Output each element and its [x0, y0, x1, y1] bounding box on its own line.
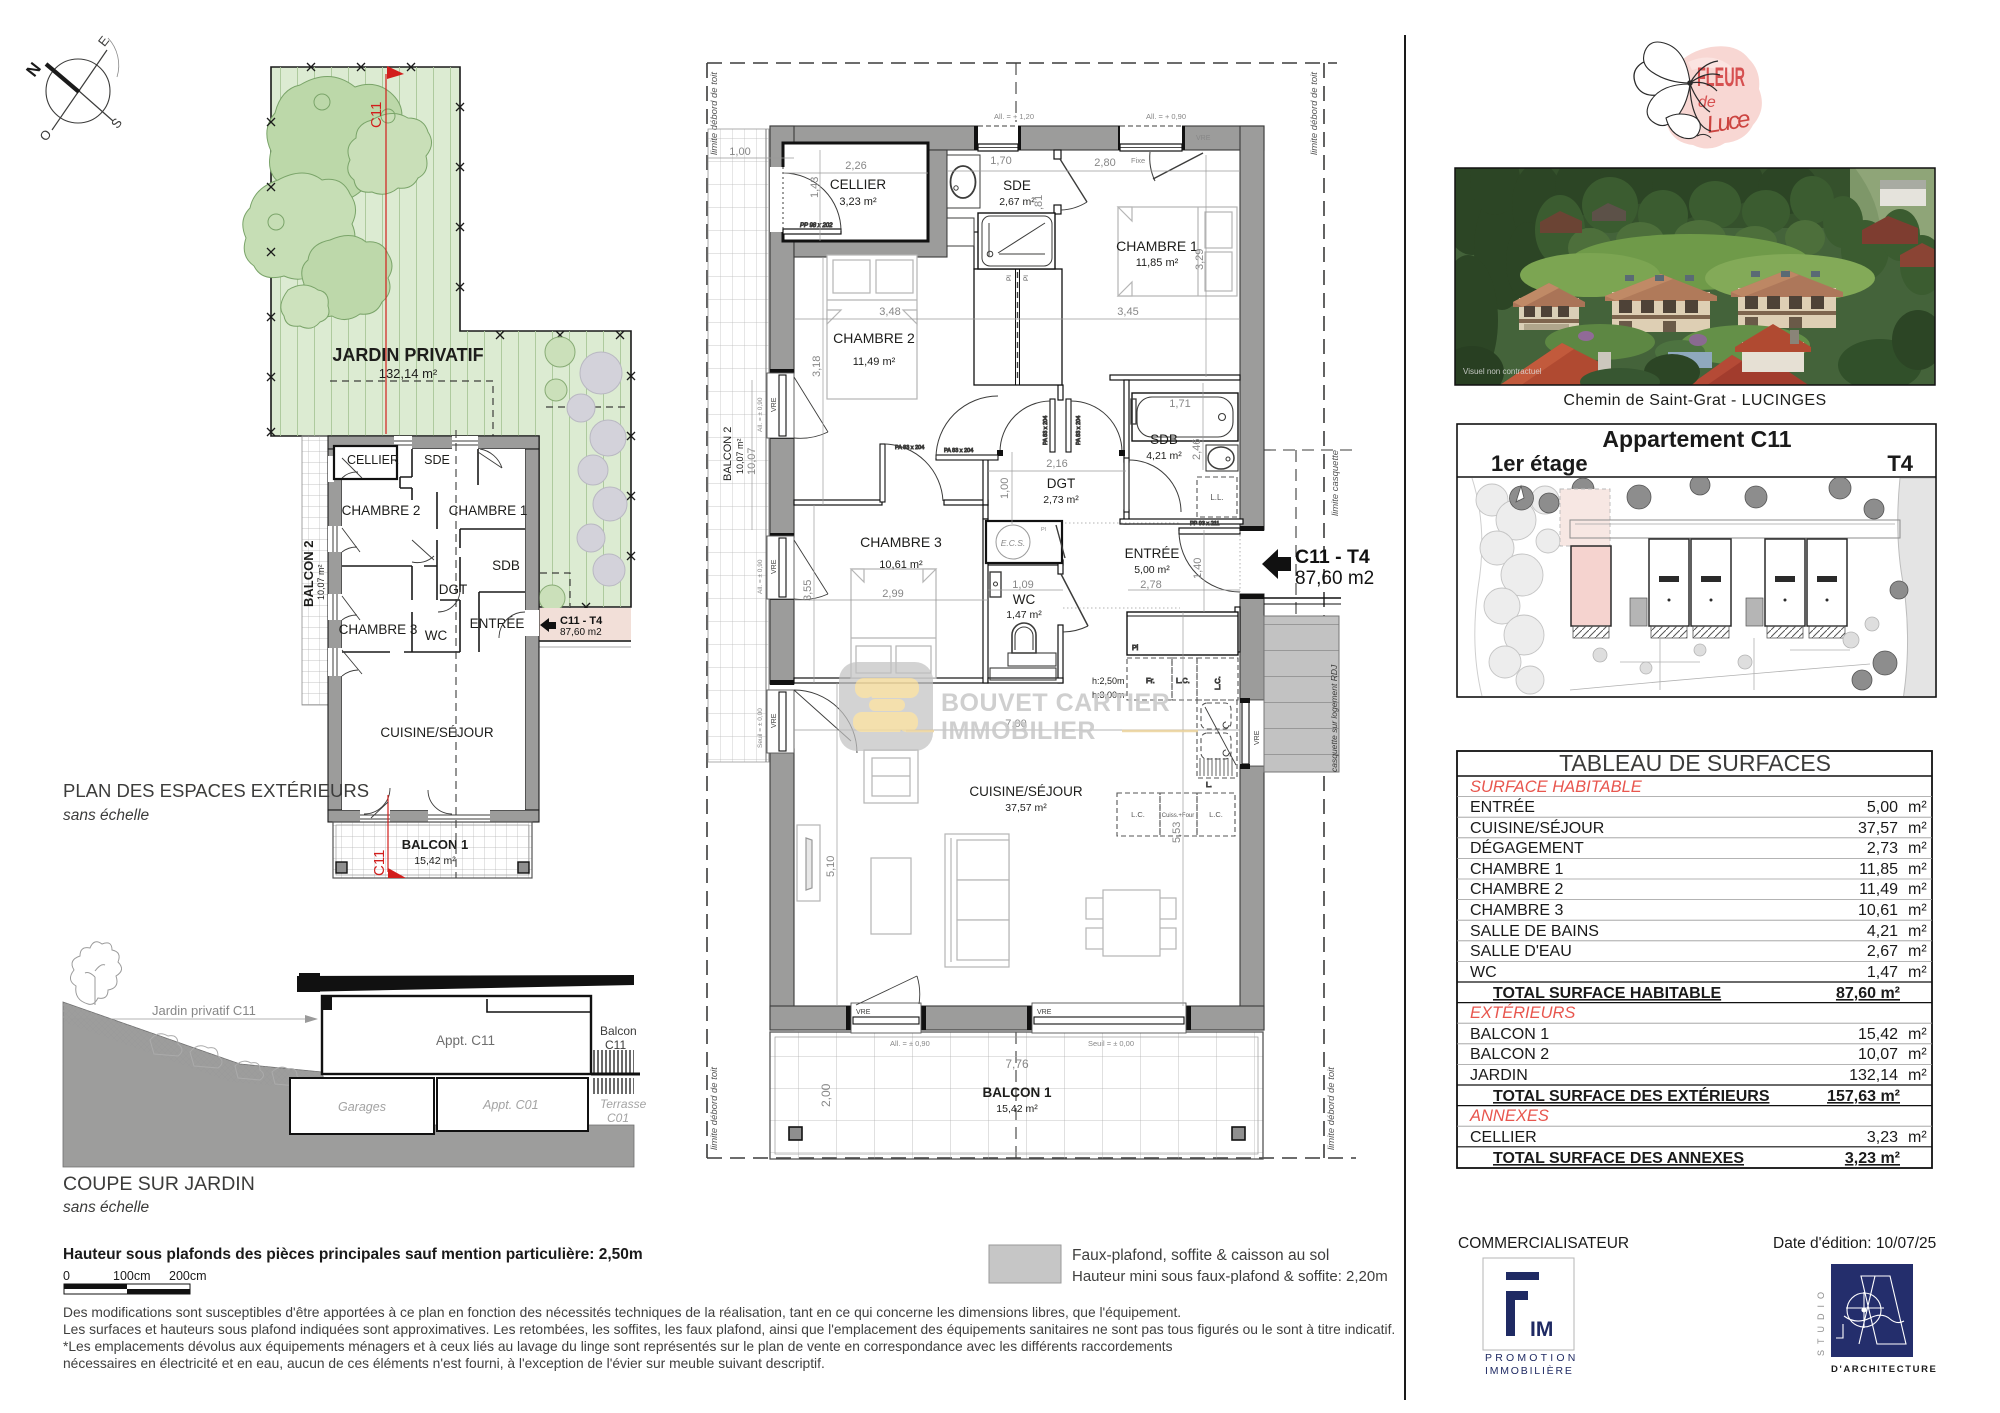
svg-text:Fixe: Fixe: [1131, 156, 1145, 165]
svg-text:CELLIER: CELLIER: [830, 177, 887, 192]
svg-text:CHAMBRE 3: CHAMBRE 3: [339, 622, 418, 637]
svg-text:3,55: 3,55: [802, 580, 814, 601]
svg-text:10,61 m²: 10,61 m²: [879, 559, 923, 571]
svg-text:87,60 m2: 87,60 m2: [1295, 568, 1374, 589]
svg-text:T4: T4: [1887, 451, 1913, 476]
svg-text:2,99: 2,99: [882, 588, 903, 600]
svg-text:1,43: 1,43: [809, 177, 821, 198]
svg-text:87,60 m²: 87,60 m²: [1836, 985, 1900, 1002]
svg-text:CHAMBRE 1: CHAMBRE 1: [1470, 861, 1563, 878]
svg-text:IM: IM: [1530, 1318, 1553, 1341]
svg-text:Cuiss.+Four: Cuiss.+Four: [1162, 813, 1195, 819]
svg-text:1,40: 1,40: [1192, 558, 1204, 579]
svg-text:PP 93 x 211: PP 93 x 211: [1190, 521, 1219, 527]
svg-text:CHAMBRE 1: CHAMBRE 1: [1116, 238, 1198, 254]
svg-text:ANNEXES: ANNEXES: [1469, 1107, 1549, 1125]
svg-text:11,85: 11,85: [1859, 861, 1898, 878]
svg-text:3,48: 3,48: [879, 306, 900, 318]
svg-text:Pl: Pl: [1132, 645, 1139, 652]
svg-text:5,00 m²: 5,00 m²: [1134, 564, 1170, 576]
svg-text:ENTRÉE: ENTRÉE: [1470, 797, 1535, 816]
svg-text:COUPE SUR JARDIN: COUPE SUR JARDIN: [63, 1173, 255, 1195]
svg-text:TOTAL SURFACE DES EXTÉRIEURS: TOTAL SURFACE DES EXTÉRIEURS: [1493, 1086, 1770, 1105]
svg-text:limite débord de toit: limite débord de toit: [1309, 72, 1320, 155]
svg-text:Visuel non contractuel: Visuel non contractuel: [1463, 367, 1542, 376]
svg-text:m²: m²: [1908, 840, 1927, 857]
svg-text:2,00: 2,00: [819, 1083, 833, 1107]
svg-text:All. = + 0,90: All. = + 0,90: [1146, 112, 1186, 121]
svg-text:2,67: 2,67: [1867, 943, 1898, 960]
svg-text:C11 - T4: C11 - T4: [1295, 546, 1370, 568]
svg-text:L.C.: L.C.: [1213, 676, 1222, 690]
svg-text:BOUVET CARTIER: BOUVET CARTIER: [941, 689, 1170, 717]
svg-text:BALCON 2: BALCON 2: [722, 427, 734, 481]
svg-text:2,67 m²: 2,67 m²: [999, 196, 1035, 208]
svg-text:Pl: Pl: [1006, 275, 1013, 281]
svg-text:SDB: SDB: [1150, 432, 1178, 447]
svg-text:Hauteur mini sous faux-plafond: Hauteur mini sous faux-plafond & soffite…: [1072, 1268, 1388, 1285]
svg-text:132,14: 132,14: [1849, 1067, 1898, 1084]
svg-text:CELLIER: CELLIER: [347, 453, 399, 467]
svg-text:87,60 m2: 87,60 m2: [560, 627, 602, 638]
svg-text:m²: m²: [1908, 964, 1927, 981]
svg-text:N: N: [22, 59, 45, 80]
svg-text:D'ARCHITECTURE: D'ARCHITECTURE: [1831, 1364, 1937, 1375]
svg-text:C11: C11: [605, 1038, 626, 1052]
svg-text:2,26: 2,26: [845, 160, 866, 172]
svg-text:15,42: 15,42: [1858, 1026, 1898, 1043]
svg-text:L.C.: L.C.: [1131, 810, 1145, 819]
svg-text:E.C.S.: E.C.S.: [1001, 538, 1026, 548]
svg-text:BALCON 2: BALCON 2: [301, 541, 316, 607]
svg-text:JARDIN: JARDIN: [1470, 1067, 1528, 1084]
svg-text:Pl: Pl: [1041, 527, 1046, 533]
svg-text:2,16: 2,16: [1046, 458, 1067, 470]
svg-text:Fr.: Fr.: [1146, 676, 1155, 685]
svg-text:1,09: 1,09: [1012, 579, 1033, 591]
svg-text:7,76: 7,76: [1005, 1057, 1029, 1071]
svg-text:S: S: [108, 115, 125, 131]
svg-text:JARDIN PRIVATIF: JARDIN PRIVATIF: [332, 345, 483, 365]
svg-text:Pl: Pl: [1023, 275, 1030, 281]
svg-text:10,61: 10,61: [1858, 902, 1898, 919]
svg-text:PROMOTION: PROMOTION: [1485, 1352, 1579, 1364]
svg-text:2,73 m²: 2,73 m²: [1043, 494, 1079, 506]
svg-text:m²: m²: [1908, 1067, 1927, 1084]
svg-text:1,47: 1,47: [1867, 964, 1898, 981]
svg-text:11,49: 11,49: [1859, 881, 1898, 898]
svg-text:C11 - T4: C11 - T4: [560, 615, 603, 627]
svg-text:SDB: SDB: [492, 558, 520, 573]
svg-text:Des modifications sont suscept: Des modifications sont susceptibles d'êt…: [63, 1305, 1181, 1320]
svg-text:PA 83 x 204: PA 83 x 204: [895, 445, 924, 451]
svg-text:*Les emplacements dévolus aux: *Les emplacements dévolus aux équipement…: [63, 1339, 1173, 1354]
svg-text:5,53: 5,53: [1171, 822, 1183, 843]
svg-text:m²: m²: [1908, 1046, 1927, 1063]
svg-text:2,46: 2,46: [1191, 439, 1203, 460]
svg-text:CHAMBRE 2: CHAMBRE 2: [1470, 881, 1563, 898]
svg-text:sans échelle: sans échelle: [63, 807, 150, 824]
svg-text:TOTAL SURFACE DES ANNEXES: TOTAL SURFACE DES ANNEXES: [1493, 1150, 1744, 1167]
svg-text:limite débord de toit: limite débord de toit: [1326, 1067, 1337, 1150]
svg-text:C11: C11: [371, 850, 388, 876]
svg-text:E: E: [95, 33, 112, 49]
svg-text:PA 83 x 204: PA 83 x 204: [1076, 416, 1082, 445]
svg-text:10,07 m²: 10,07 m²: [316, 564, 326, 600]
svg-text:PA 83 x 204: PA 83 x 204: [944, 448, 973, 454]
svg-text:O: O: [36, 127, 54, 144]
svg-text:CELLIER: CELLIER: [1470, 1129, 1537, 1146]
svg-text:WC: WC: [425, 628, 448, 643]
svg-text:15,42 m²: 15,42 m²: [996, 1103, 1038, 1115]
svg-text:SURFACE HABITABLE: SURFACE HABITABLE: [1470, 778, 1643, 796]
svg-text:Chemin de Saint-Grat - LUCINGE: Chemin de Saint-Grat - LUCINGES: [1563, 392, 1826, 409]
svg-text:DÉGAGEMENT: DÉGAGEMENT: [1470, 838, 1584, 857]
svg-text:VRE: VRE: [771, 559, 778, 574]
svg-text:All. = ± 0,90: All. = ± 0,90: [757, 559, 764, 594]
svg-text:EXTÉRIEURS: EXTÉRIEURS: [1470, 1003, 1575, 1022]
svg-text:1,47 m²: 1,47 m²: [1006, 609, 1042, 621]
svg-text:BALCON 1: BALCON 1: [982, 1085, 1051, 1100]
svg-text:2,73: 2,73: [1867, 840, 1898, 857]
svg-text:m²: m²: [1908, 881, 1927, 898]
svg-text:200cm: 200cm: [169, 1269, 207, 1283]
svg-text:10,07 m²: 10,07 m²: [735, 438, 745, 474]
svg-text:h:2,50m: h:2,50m: [1092, 676, 1125, 686]
svg-text:Jardin privatif C11: Jardin privatif C11: [152, 1003, 256, 1018]
svg-text:Appt. C11: Appt. C11: [436, 1033, 495, 1048]
svg-text:4,21 m²: 4,21 m²: [1146, 450, 1182, 462]
svg-text:VRE: VRE: [1254, 730, 1261, 745]
svg-text:3,23 m²: 3,23 m²: [1845, 1150, 1900, 1167]
svg-text:COMMERCIALISATEUR: COMMERCIALISATEUR: [1458, 1235, 1629, 1252]
svg-text:3,23: 3,23: [1867, 1129, 1898, 1146]
svg-text:sans échelle: sans échelle: [63, 1199, 150, 1216]
svg-text:Les surfaces et hauteurs sous: Les surfaces et hauteurs sous plafond in…: [63, 1322, 1395, 1337]
svg-text:DGT: DGT: [1047, 476, 1076, 491]
svg-text:3,23 m²: 3,23 m²: [839, 196, 877, 208]
svg-text:CHAMBRE 3: CHAMBRE 3: [860, 534, 942, 550]
svg-text:5,00: 5,00: [1867, 799, 1898, 816]
svg-text:5,10: 5,10: [825, 856, 837, 877]
svg-text:All. = ± 0,90: All. = ± 0,90: [757, 397, 764, 432]
svg-text:,81: ,81: [1033, 195, 1045, 210]
svg-text:CUISINE/SÉJOUR: CUISINE/SÉJOUR: [1470, 818, 1604, 837]
svg-text:157,63 m²: 157,63 m²: [1827, 1088, 1900, 1105]
svg-text:1,00: 1,00: [729, 146, 750, 158]
svg-text:limite casquette: limite casquette: [1330, 450, 1341, 516]
svg-text:0: 0: [63, 1269, 70, 1283]
svg-text:37,57 m²: 37,57 m²: [1005, 802, 1047, 814]
svg-text:ENTRÉE: ENTRÉE: [1125, 546, 1180, 561]
svg-text:VRE: VRE: [1037, 1009, 1052, 1016]
svg-text:132,14 m²: 132,14 m²: [379, 366, 438, 381]
svg-text:VRE: VRE: [771, 713, 778, 728]
svg-text:1er étage: 1er étage: [1491, 451, 1588, 476]
svg-text:m²: m²: [1908, 902, 1927, 919]
svg-text:m²: m²: [1908, 943, 1927, 960]
svg-text:IMMOBILIÈRE: IMMOBILIÈRE: [1485, 1364, 1574, 1377]
svg-text:SALLE DE BAINS: SALLE DE BAINS: [1470, 923, 1599, 940]
svg-text:CHAMBRE 3: CHAMBRE 3: [1470, 902, 1563, 919]
svg-text:3,45: 3,45: [1117, 306, 1138, 318]
svg-text:m²: m²: [1908, 1129, 1927, 1146]
svg-text:ENTRÉE: ENTRÉE: [470, 616, 525, 631]
svg-text:CHAMBRE 2: CHAMBRE 2: [342, 503, 421, 518]
svg-text:PP 98 x 202: PP 98 x 202: [800, 223, 833, 229]
svg-text:L.C.: L.C.: [1209, 810, 1223, 819]
svg-text:11,49 m²: 11,49 m²: [853, 356, 896, 368]
svg-text:DGT: DGT: [439, 582, 468, 597]
svg-text:m²: m²: [1908, 820, 1927, 837]
svg-text:TOTAL SURFACE HABITABLE: TOTAL SURFACE HABITABLE: [1493, 985, 1721, 1002]
svg-text:11,85 m²: 11,85 m²: [1136, 257, 1179, 269]
svg-text:Appt. C01: Appt. C01: [482, 1098, 539, 1112]
svg-text:C11: C11: [368, 102, 385, 128]
svg-text:CUISINE/SÉJOUR: CUISINE/SÉJOUR: [380, 725, 494, 740]
svg-text:Seuil = ± 0,00: Seuil = ± 0,00: [757, 708, 764, 748]
svg-text:PLAN DES ESPACES EXTÉRIEURS: PLAN DES ESPACES EXTÉRIEURS: [63, 780, 369, 801]
svg-text:Balcon: Balcon: [600, 1024, 637, 1038]
svg-text:Garages: Garages: [338, 1100, 386, 1114]
svg-text:SALLE D'EAU: SALLE D'EAU: [1470, 943, 1572, 960]
svg-text:CHAMBRE 1: CHAMBRE 1: [449, 503, 528, 518]
svg-text:casquette sur logement RDJ: casquette sur logement RDJ: [1329, 664, 1339, 772]
svg-text:1,00: 1,00: [999, 478, 1011, 499]
svg-text:Appartement C11: Appartement C11: [1602, 426, 1791, 452]
svg-text:37,57: 37,57: [1858, 820, 1898, 837]
svg-text:1,71: 1,71: [1169, 398, 1190, 410]
svg-text:m²: m²: [1908, 861, 1927, 878]
svg-text:All. = ± 0,90: All. = ± 0,90: [890, 1039, 930, 1048]
svg-text:Terrasse: Terrasse: [600, 1097, 647, 1111]
svg-text:2,78: 2,78: [1140, 579, 1161, 591]
svg-text:IMMOBILIER: IMMOBILIER: [941, 717, 1096, 745]
svg-text:PA 83 x 204: PA 83 x 204: [1043, 416, 1049, 445]
svg-text:TABLEAU DE SURFACES: TABLEAU DE SURFACES: [1559, 750, 1831, 776]
svg-text:1,70: 1,70: [990, 155, 1011, 167]
svg-text:CUISINE/SÉJOUR: CUISINE/SÉJOUR: [969, 784, 1083, 799]
svg-text:STUDIO: STUDIO: [1816, 1286, 1826, 1356]
svg-text:VRE: VRE: [1196, 135, 1211, 142]
svg-text:L.L.: L.L.: [1210, 493, 1223, 502]
svg-text:limite débord de toit: limite débord de toit: [709, 1067, 720, 1150]
svg-text:m²: m²: [1908, 1026, 1927, 1043]
svg-text:BALCON 1: BALCON 1: [402, 837, 468, 852]
svg-text:4,21: 4,21: [1867, 923, 1898, 940]
svg-text:3,29: 3,29: [1194, 249, 1206, 270]
svg-text:VRE: VRE: [856, 1009, 871, 1016]
svg-text:C01: C01: [607, 1111, 629, 1125]
svg-text:CHAMBRE 2: CHAMBRE 2: [833, 330, 915, 346]
svg-text:BALCON 2: BALCON 2: [1470, 1046, 1549, 1063]
svg-text:2,80: 2,80: [1094, 157, 1115, 169]
svg-text:Seuil = ± 0,00: Seuil = ± 0,00: [1088, 1039, 1134, 1048]
svg-text:nécessaires en électricité et: nécessaires en électricité et en eau, au…: [63, 1356, 825, 1371]
svg-text:SDE: SDE: [424, 453, 450, 467]
svg-text:VRE: VRE: [771, 397, 778, 412]
svg-text:Date d'édition: 10/07/25: Date d'édition: 10/07/25: [1773, 1235, 1936, 1252]
svg-text:Hauteur sous plafonds des pièc: Hauteur sous plafonds des pièces princip…: [63, 1246, 643, 1263]
svg-text:SDE: SDE: [1003, 178, 1031, 193]
svg-text:10,07: 10,07: [1858, 1046, 1898, 1063]
svg-text:BALCON 1: BALCON 1: [1470, 1026, 1549, 1043]
svg-text:All. = + 1,20: All. = + 1,20: [994, 112, 1034, 121]
svg-text:WC: WC: [1470, 964, 1497, 981]
svg-text:m²: m²: [1908, 923, 1927, 940]
svg-text:100cm: 100cm: [113, 1269, 151, 1283]
svg-text:3,18: 3,18: [811, 356, 823, 377]
svg-text:15,42 m²: 15,42 m²: [414, 855, 456, 867]
svg-text:L.: L.: [1206, 782, 1212, 789]
svg-text:Faux-plafond, soffite & caisso: Faux-plafond, soffite & caisson au sol: [1072, 1247, 1329, 1264]
svg-text:m²: m²: [1908, 799, 1927, 816]
svg-text:WC: WC: [1013, 592, 1036, 607]
